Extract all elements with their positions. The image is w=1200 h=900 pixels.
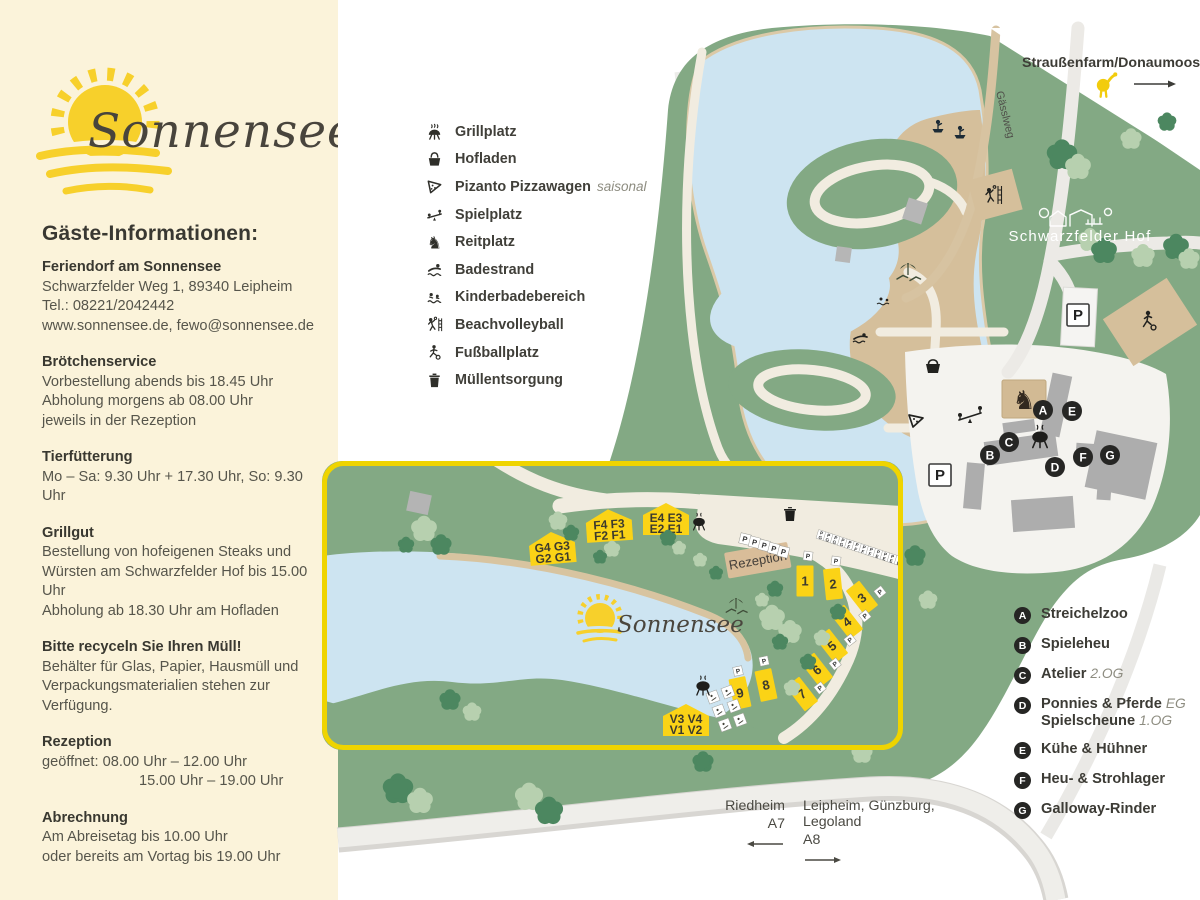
svg-text:B: B bbox=[986, 449, 995, 463]
legend-label: Kinderbadebereich bbox=[455, 289, 585, 305]
legend-label: Hofladen bbox=[455, 151, 517, 167]
legend-item: Kinderbadebereich bbox=[424, 284, 646, 312]
building-marker-badge: F bbox=[1014, 772, 1031, 789]
legend-item: Fußballplatz bbox=[424, 339, 646, 367]
building-marker-badge: E bbox=[1014, 742, 1031, 759]
svg-text:E: E bbox=[1068, 405, 1076, 419]
legend-item: Beachvolleyball bbox=[424, 311, 646, 339]
horse-riding-icon: ♞ bbox=[424, 232, 444, 252]
parking-spot: P bbox=[803, 551, 813, 561]
marker-g: G bbox=[1100, 445, 1120, 465]
direction-riedheim: Riedheim A7 bbox=[660, 798, 785, 854]
facilities-legend: GrillplatzHofladenPizanto Pizzawagensais… bbox=[424, 118, 646, 394]
arrow-right-icon bbox=[803, 855, 843, 865]
parking-sign: P bbox=[929, 464, 951, 486]
legend-item: Müllentsorgung bbox=[424, 366, 646, 394]
legend-label: Müllentsorgung bbox=[455, 372, 563, 388]
building-legend-label: Spieleheu bbox=[1041, 636, 1110, 653]
kids-swim-icon bbox=[424, 287, 444, 307]
legend-label: Pizanto Pizzawagen bbox=[455, 179, 591, 195]
direction-leipheim: Leipheim, Günzburg, Legoland A8 bbox=[803, 798, 993, 870]
marker-a: A bbox=[1033, 400, 1053, 420]
farm-shop-basket-icon bbox=[424, 149, 444, 169]
legend-item: Pizanto Pizzawagensaisonal bbox=[424, 173, 646, 201]
cabin-1: 1 bbox=[797, 566, 814, 597]
straussenfarm-icons bbox=[1092, 70, 1178, 98]
building-legend-label: Heu- & Strohlager bbox=[1041, 771, 1165, 788]
svg-text:G: G bbox=[1105, 449, 1114, 463]
svg-text:P: P bbox=[935, 467, 945, 484]
svg-text:F2 F1: F2 F1 bbox=[594, 527, 627, 543]
legend-item: ♞Reitplatz bbox=[424, 228, 646, 256]
arrow-right-icon bbox=[1132, 78, 1178, 90]
legend-label: Badestrand bbox=[455, 262, 534, 278]
svg-text:2: 2 bbox=[829, 576, 838, 592]
legend-item: Badestrand bbox=[424, 256, 646, 284]
marker-d: D bbox=[1045, 457, 1065, 477]
marker-f: F bbox=[1073, 447, 1093, 467]
cabin-2: 2 bbox=[823, 568, 843, 601]
marker-e: E bbox=[1062, 401, 1082, 421]
svg-text:D: D bbox=[1051, 461, 1060, 475]
building-marker-badge: A bbox=[1014, 607, 1031, 624]
trash-icon bbox=[424, 370, 444, 390]
direction-place: Leipheim, Günzburg, Legoland bbox=[803, 798, 993, 830]
svg-text:P: P bbox=[1073, 307, 1083, 324]
building-legend-item: CAtelier2.OG bbox=[1014, 666, 1186, 684]
playground-icon bbox=[424, 205, 444, 225]
svg-text:F: F bbox=[1079, 451, 1086, 465]
parking-spot: P bbox=[733, 666, 744, 677]
parking-sign: P bbox=[1067, 304, 1089, 326]
legend-label: Fußballplatz bbox=[455, 345, 539, 361]
building-legend-item: AStreichelzoo bbox=[1014, 606, 1186, 624]
legend-label: Reitplatz bbox=[455, 234, 515, 250]
parking-spot: P bbox=[831, 556, 841, 566]
straussenfarm-note: Straußenfarm/Donaumoos bbox=[1022, 55, 1200, 71]
building-legend-item: EKühe & Hühner bbox=[1014, 741, 1186, 759]
building-legend-item: GGalloway-Rinder bbox=[1014, 801, 1186, 819]
building-legend: AStreichelzooBSpieleheuCAtelier2.OGDPonn… bbox=[1014, 606, 1186, 831]
svg-text:♞: ♞ bbox=[426, 233, 441, 251]
legend-item: Hofladen bbox=[424, 146, 646, 174]
legend-label: Grillplatz bbox=[455, 124, 517, 140]
direction-road: A7 bbox=[660, 816, 785, 832]
horse-riding-icon: ♞ bbox=[1012, 385, 1035, 415]
building-legend-label: Galloway-Rinder bbox=[1041, 801, 1156, 818]
building-legend-label: Ponnies & PferdeEGSpielscheune1.OG bbox=[1041, 696, 1186, 729]
building-legend-item: FHeu- & Strohlager bbox=[1014, 771, 1186, 789]
building-legend-item: BSpieleheu bbox=[1014, 636, 1186, 654]
pizza-icon bbox=[424, 177, 444, 197]
marker-b: B bbox=[980, 445, 1000, 465]
legend-note: saisonal bbox=[597, 179, 647, 194]
svg-text:A: A bbox=[1039, 404, 1048, 418]
svg-text:Sonnensee: Sonnensee bbox=[617, 612, 744, 638]
legend-label: Beachvolleyball bbox=[455, 317, 564, 333]
svg-text:C: C bbox=[1005, 436, 1014, 450]
swimmer-icon bbox=[424, 260, 444, 280]
building-marker-badge: G bbox=[1014, 802, 1031, 819]
legend-label: Spielplatz bbox=[455, 207, 522, 223]
ostrich-icon bbox=[1092, 70, 1122, 98]
building-legend-label: Atelier2.OG bbox=[1041, 666, 1123, 683]
marker-c: C bbox=[999, 432, 1019, 452]
farm-label: Schwarzfelder Hof bbox=[1009, 228, 1152, 245]
volleyball-icon bbox=[424, 315, 444, 335]
building-marker-badge: C bbox=[1014, 667, 1031, 684]
svg-text:V1 V2: V1 V2 bbox=[670, 723, 703, 737]
direction-place: Riedheim bbox=[660, 798, 785, 814]
trash-icon bbox=[784, 507, 796, 521]
building-legend-item: DPonnies & PferdeEGSpielscheune1.OG bbox=[1014, 696, 1186, 729]
grill-icon bbox=[424, 122, 444, 142]
building-marker-badge: D bbox=[1014, 697, 1031, 714]
legend-item: Grillplatz bbox=[424, 118, 646, 146]
parking-spot: P bbox=[777, 545, 790, 558]
building-marker-badge: B bbox=[1014, 637, 1031, 654]
village-inset-map: Rezeption Sonnensee G4 G3G2 G1 F4 F3F2 F… bbox=[322, 461, 904, 750]
legend-item: Spielplatz bbox=[424, 201, 646, 229]
building-legend-label: Kühe & Hühner bbox=[1041, 741, 1147, 758]
soccer-icon bbox=[424, 343, 444, 363]
svg-text:1: 1 bbox=[801, 574, 808, 589]
building-legend-label: Streichelzoo bbox=[1041, 606, 1128, 623]
parking-spot: P bbox=[759, 656, 770, 667]
direction-road: A8 bbox=[803, 832, 993, 848]
arrow-left-icon bbox=[745, 839, 785, 849]
